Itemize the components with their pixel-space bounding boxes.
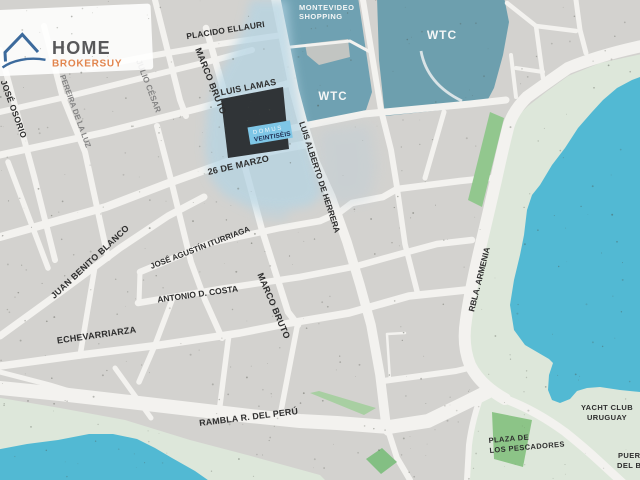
- svg-text:WTC: WTC: [318, 91, 347, 103]
- svg-text:YACHT CLUB: YACHT CLUB: [581, 403, 633, 412]
- svg-text:HOME: HOME: [52, 38, 111, 58]
- svg-text:PUERTO: PUERTO: [618, 451, 640, 460]
- svg-text:WTC: WTC: [427, 28, 457, 42]
- svg-text:MONTEVIDEO: MONTEVIDEO: [299, 3, 354, 12]
- svg-text:BROKERSUY: BROKERSUY: [52, 59, 122, 70]
- svg-text:URUGUAY: URUGUAY: [587, 413, 627, 422]
- svg-text:DEL BUCEO: DEL BUCEO: [617, 461, 640, 470]
- svg-text:SHOPPING: SHOPPING: [299, 12, 343, 21]
